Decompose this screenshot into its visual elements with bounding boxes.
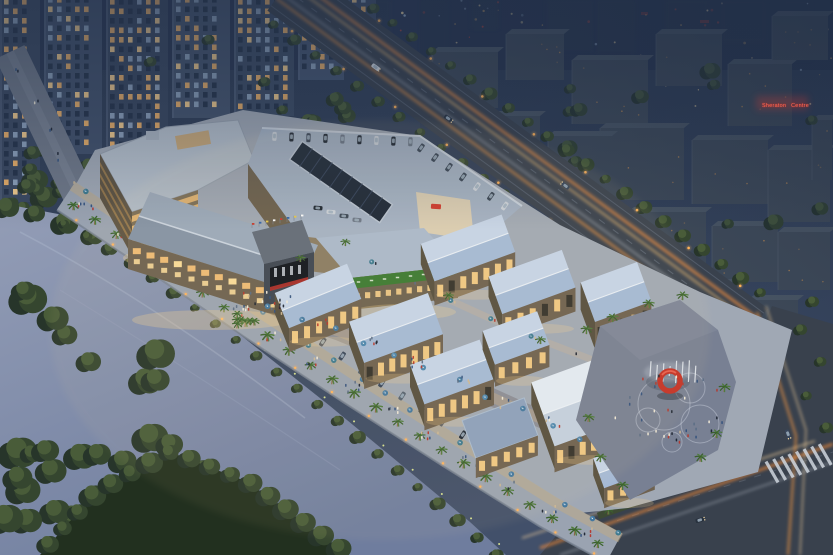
palm-frond bbox=[598, 543, 599, 548]
tree-foliage bbox=[84, 485, 98, 499]
pedestrian bbox=[679, 441, 681, 444]
street-lamp bbox=[687, 247, 690, 250]
distant-signage: Sheraton Centre Sheraton Centre bbox=[756, 96, 809, 110]
pedestrian bbox=[695, 428, 697, 431]
pedestrian bbox=[553, 511, 555, 514]
pedestrian bbox=[671, 432, 673, 435]
tree-foliage bbox=[103, 474, 116, 487]
pedestrian bbox=[721, 421, 723, 424]
pedestrian bbox=[580, 534, 582, 537]
architectural-rendering-canvas: Sheraton Centre Sheraton Centre bbox=[0, 0, 833, 555]
umbrella-pole bbox=[618, 532, 619, 533]
tree-foliage bbox=[678, 229, 686, 237]
pedestrian bbox=[693, 423, 695, 426]
tree-foliage bbox=[41, 536, 52, 547]
tree-foliage bbox=[736, 272, 745, 281]
pedestrian bbox=[679, 431, 681, 434]
pedestrian bbox=[590, 534, 592, 537]
tree-foliage bbox=[331, 539, 344, 552]
pedestrian bbox=[590, 530, 592, 533]
pedestrian bbox=[695, 436, 697, 439]
shore-lamp bbox=[498, 543, 500, 545]
pedestrian bbox=[702, 378, 704, 381]
ground-glow bbox=[605, 498, 654, 508]
sheraton-centre-sign: Sheraton Centre bbox=[762, 103, 809, 109]
pedestrian bbox=[719, 431, 721, 434]
tree-foliage bbox=[71, 504, 82, 515]
umbrella-pole bbox=[564, 504, 565, 505]
pedestrian bbox=[716, 416, 718, 419]
promenade-lamp bbox=[554, 531, 556, 533]
palm-frond bbox=[608, 510, 609, 514]
pedestrian bbox=[591, 527, 593, 530]
pedestrian bbox=[686, 429, 688, 432]
tree-foliage bbox=[803, 392, 809, 398]
pedestrian bbox=[711, 429, 713, 432]
tree-foliage bbox=[796, 324, 803, 331]
pedestrian bbox=[668, 433, 670, 436]
pedestrian bbox=[676, 438, 678, 441]
tree-foliage bbox=[46, 500, 62, 516]
warm-glow bbox=[50, 120, 710, 540]
shop-window bbox=[607, 490, 613, 500]
promenade-lamp bbox=[593, 552, 595, 554]
tree-foliage bbox=[89, 444, 103, 458]
pedestrian bbox=[716, 389, 718, 392]
tree-foliage bbox=[757, 288, 763, 294]
pedestrian bbox=[555, 510, 557, 513]
umbrella-pole bbox=[592, 518, 593, 519]
pedestrian bbox=[708, 420, 710, 423]
street-lamp bbox=[739, 285, 742, 288]
tree-foliage bbox=[717, 259, 724, 266]
tree-foliage bbox=[9, 467, 24, 482]
tree-foliage bbox=[16, 282, 28, 294]
pedestrian bbox=[584, 532, 586, 535]
tree-foliage bbox=[37, 440, 51, 454]
tree-foliage bbox=[57, 521, 66, 530]
tree-foliage bbox=[817, 357, 823, 363]
tree-foliage bbox=[822, 423, 829, 430]
tree-foliage bbox=[42, 459, 58, 475]
tree-foliage bbox=[473, 532, 480, 539]
pedestrian bbox=[687, 434, 689, 437]
tree-foliage bbox=[808, 296, 815, 303]
tree-foliage bbox=[697, 244, 705, 252]
aerial-mall-rendering: Sheraton Centre Sheraton Centre bbox=[0, 0, 833, 555]
